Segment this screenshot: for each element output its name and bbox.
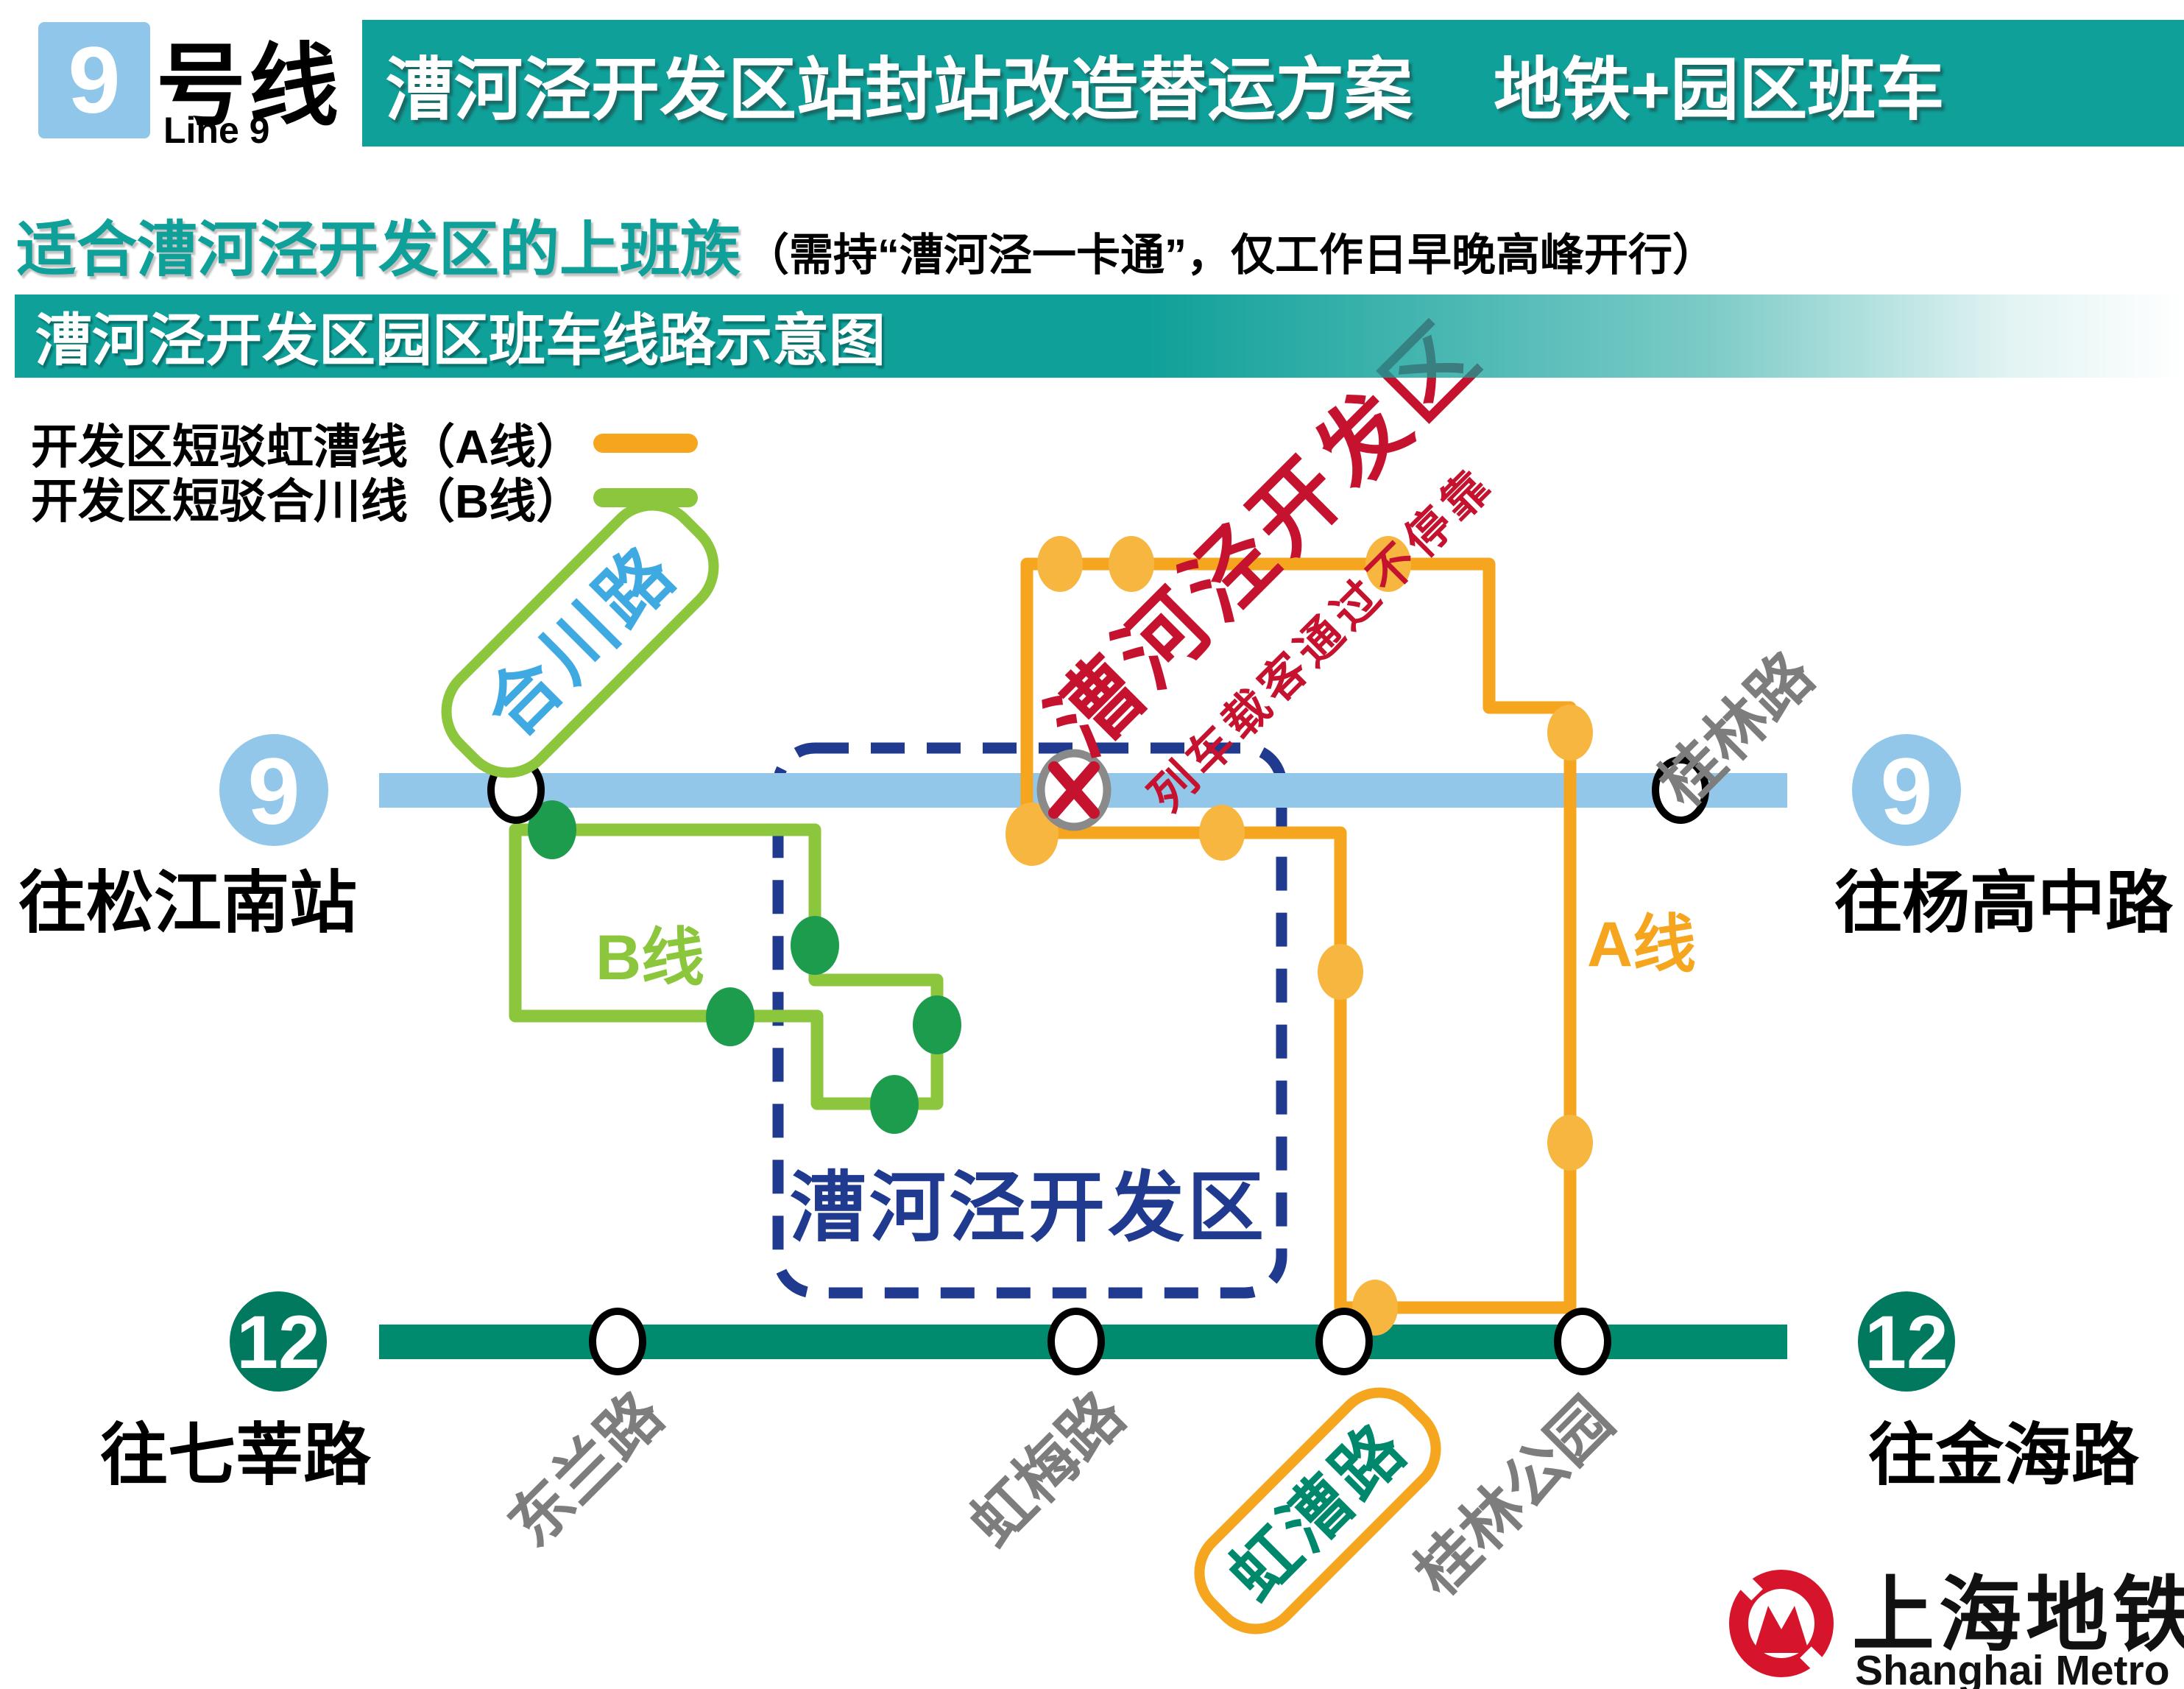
line9-terminus-right: 往杨高中路 (1834, 866, 2174, 941)
line12-badge-left: 12 (230, 1291, 327, 1392)
route-b-dot (706, 987, 754, 1046)
route-b-dot (870, 1075, 919, 1134)
line9-header-badge: 9 (38, 22, 150, 138)
line12-badge-right-number: 12 (1865, 1300, 1948, 1384)
title-bar: 漕河泾开发区站封站改造替运方案 地铁+园区班车 (362, 20, 2184, 147)
subtitle-note: （需持“漕河泾一卡通”，仅工作日早晚高峰开行） (745, 219, 1717, 283)
line12-badge-right: 12 (1858, 1291, 1955, 1392)
route-a-dot (1547, 705, 1593, 761)
zone-label: 漕河泾开发区 (790, 1166, 1267, 1251)
route-b-dot (913, 995, 961, 1054)
station-label-hongcaolu-box: 虹漕路 (1181, 1375, 1453, 1646)
line9-badge-left-number: 9 (247, 739, 300, 844)
station-label-hongmeilu: 虹梅路 (957, 1379, 1137, 1559)
subtitle-row: 适合漕河泾开发区的上班族 （需持“漕河泾一卡通”，仅工作日早晚高峰开行） (16, 200, 1717, 288)
title-main: 漕河泾开发区站封站改造替运方案 (386, 34, 1413, 133)
legend-swatch-route-b-icon (593, 488, 698, 507)
route-a-label: A线 (1587, 909, 1696, 980)
legend-swatch-route-a-icon (593, 434, 698, 453)
station-label-guilinpark: 桂林公园 (1402, 1385, 1626, 1609)
logo-text-en: Shanghai Metro (1855, 1647, 2170, 1689)
line9-badge-right-number: 9 (1880, 739, 1932, 844)
route-a-dot (1547, 1115, 1593, 1171)
route-a-dot (1199, 805, 1245, 861)
title-tag: 地铁+园区班车 (1494, 34, 1944, 133)
line12-terminus-left: 往七莘路 (100, 1418, 372, 1493)
route-b-label: B线 (596, 923, 704, 993)
legend-label-route-b: 开发区短驳合川线（B线） (31, 464, 583, 532)
shanghai-metro-emblem-icon (1729, 1570, 1834, 1677)
line12-terminus-right: 往金海路 (1868, 1418, 2140, 1493)
station-donglanlu-circle (593, 1311, 643, 1372)
line9-badge-left: 9 (219, 734, 328, 846)
section-banner-text: 漕河泾开发区园区班车线路示意图 (35, 295, 886, 377)
shanghai-metro-logo: 上海地铁 Shanghai Metro (1729, 1569, 2184, 1689)
station-hongmeilu-circle (1051, 1311, 1101, 1372)
subtitle-lead: 适合漕河泾开发区的上班族 (16, 200, 741, 288)
route-a-dot (1318, 944, 1363, 1000)
legend-row-route-b: 开发区短驳合川线（B线） (31, 464, 698, 532)
line-name-en-label: Line 9 (163, 109, 269, 152)
station-label-donglanlu: 东兰路 (495, 1379, 676, 1559)
line9-terminus-left: 往松江南站 (18, 866, 357, 941)
station-label-hechuanlu-box: 合川路 (428, 487, 732, 791)
line12-badge-left-number: 12 (236, 1300, 319, 1384)
route-b-dot (791, 916, 839, 975)
route-b-stop-dots (528, 800, 961, 1134)
route-a-dot (1109, 536, 1154, 592)
station-guilinpark-circle (1558, 1311, 1608, 1372)
line9-header-badge-number: 9 (68, 27, 120, 135)
poster-canvas: 9 9 12 12 往松江南站 往杨高中路 往七莘路 往金海路 桂林路 东兰路 … (0, 0, 2184, 1689)
section-banner: 漕河泾开发区园区班车线路示意图 (15, 295, 2184, 378)
route-a-dot (1037, 536, 1083, 592)
route-b-line (515, 830, 937, 1104)
line9-badge-right: 9 (1852, 734, 1961, 846)
station-hongcaolu-circle (1319, 1311, 1369, 1372)
